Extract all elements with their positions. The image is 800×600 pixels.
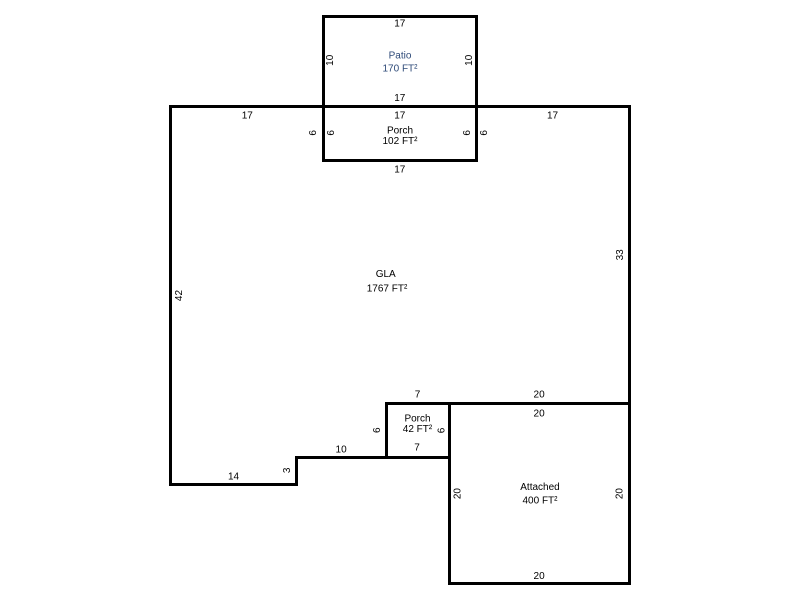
svg-text:Patio: Patio bbox=[389, 51, 412, 62]
svg-text:14: 14 bbox=[228, 471, 240, 482]
svg-text:10: 10 bbox=[325, 54, 336, 66]
svg-text:102 FT²: 102 FT² bbox=[382, 136, 418, 147]
svg-text:17: 17 bbox=[394, 93, 406, 104]
svg-text:6: 6 bbox=[308, 130, 319, 136]
svg-text:3: 3 bbox=[282, 467, 293, 473]
svg-text:6: 6 bbox=[479, 130, 490, 136]
svg-text:20: 20 bbox=[534, 571, 546, 582]
svg-text:6: 6 bbox=[372, 427, 383, 433]
svg-text:17: 17 bbox=[394, 19, 406, 30]
svg-text:10: 10 bbox=[464, 54, 475, 66]
svg-text:6: 6 bbox=[462, 130, 473, 136]
svg-text:400 FT²: 400 FT² bbox=[522, 496, 558, 507]
svg-text:17: 17 bbox=[394, 111, 406, 122]
svg-text:7: 7 bbox=[414, 442, 420, 453]
svg-text:17: 17 bbox=[394, 165, 406, 176]
svg-text:20: 20 bbox=[534, 390, 546, 401]
svg-text:17: 17 bbox=[547, 111, 559, 122]
svg-text:1767 FT²: 1767 FT² bbox=[367, 284, 408, 295]
svg-text:GLA: GLA bbox=[376, 269, 396, 280]
svg-text:7: 7 bbox=[415, 390, 421, 401]
svg-text:6: 6 bbox=[326, 130, 337, 136]
svg-text:20: 20 bbox=[615, 488, 626, 500]
svg-text:33: 33 bbox=[615, 249, 626, 261]
svg-text:17: 17 bbox=[242, 111, 254, 122]
svg-text:42: 42 bbox=[174, 290, 185, 302]
svg-text:Attached: Attached bbox=[520, 482, 559, 493]
svg-text:20: 20 bbox=[452, 488, 463, 500]
svg-text:20: 20 bbox=[534, 408, 546, 419]
svg-text:10: 10 bbox=[336, 445, 348, 456]
svg-text:6: 6 bbox=[437, 427, 448, 433]
svg-text:170 FT²: 170 FT² bbox=[382, 64, 418, 75]
svg-text:42 FT²: 42 FT² bbox=[403, 424, 433, 435]
